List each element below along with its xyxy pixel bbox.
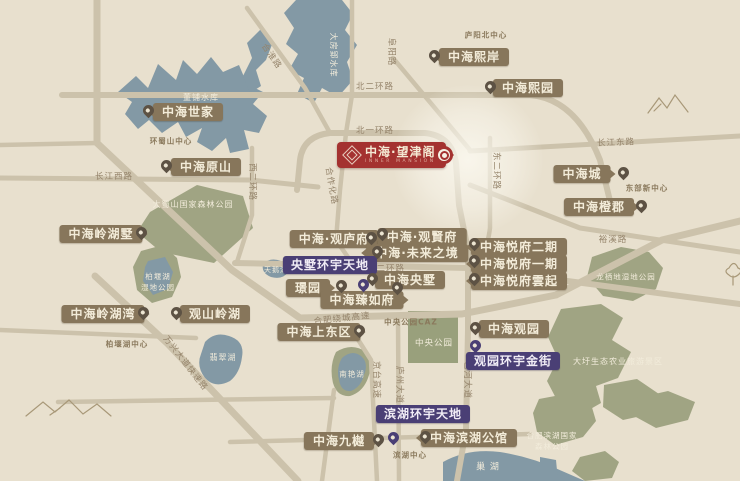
project-tag: 中海上东区 xyxy=(277,323,360,341)
nature-label: 翡翠湖 xyxy=(210,352,237,364)
road-label: 裕溪路 xyxy=(599,233,628,245)
location-map: 中海·望津阁 INNER MANSION 中海世家中海原山中海熙岸中海熙园中海岭… xyxy=(0,0,740,481)
project-tag: 中海熙岸 xyxy=(439,48,509,66)
project-badge: 中海·望津阁 INNER MANSION xyxy=(337,142,446,168)
nature-label: 龙栖地湿地公园 xyxy=(596,271,656,282)
district-label: 环蜀山中心 xyxy=(150,136,193,147)
road-label: 长江东路 xyxy=(597,135,635,148)
road-label: 北二环路 xyxy=(356,80,394,92)
zhonghai-logo-icon xyxy=(342,145,362,165)
badge-project-name: 中海·望津阁 xyxy=(365,146,436,158)
road-label: 阜阳路 xyxy=(386,38,398,67)
project-tag: 中海熙园 xyxy=(493,79,563,97)
nature-label: 南艳湖 xyxy=(339,368,365,379)
project-tag: 中海九樾 xyxy=(304,432,374,450)
project-tag: 中海悦府雲起 xyxy=(471,272,567,290)
district-label: 庐阳北中心 xyxy=(465,30,508,41)
road-label: 庐州大道 xyxy=(394,366,406,404)
district-label: 中央公园CAZ xyxy=(384,317,438,328)
road-label: 长江西路 xyxy=(95,170,133,182)
project-tag: 中海橙郡 xyxy=(564,198,634,216)
road-label: 东二环路 xyxy=(491,152,503,190)
nature-label: 大圩生态农业旅游景区 xyxy=(573,356,663,368)
road-label: 北一环路 xyxy=(356,124,394,136)
district-label: 东部新中心 xyxy=(626,183,669,194)
project-tag: 中海臻如府 xyxy=(320,291,403,309)
project-tag: 中海央墅 xyxy=(375,271,445,289)
hub-tag: 央墅环宇天地 xyxy=(283,256,377,274)
project-tag: 中海滨湖公馆 xyxy=(421,429,517,447)
badge-texts: 中海·望津阁 INNER MANSION xyxy=(365,146,436,165)
project-tag: 中海观园 xyxy=(479,320,549,338)
nature-label: 合肥滨湖国家 森林公园 xyxy=(527,430,578,453)
nature-label: 中央公园 xyxy=(415,338,453,351)
badge-target-marker-icon xyxy=(435,146,453,164)
hub-tag: 滨湖环宇天地 xyxy=(376,405,470,423)
nature-label: 大蜀山国家森林公园 xyxy=(153,199,234,211)
project-tag: 中海岭湖湾 xyxy=(61,305,144,323)
nature-label: 巢 湖 xyxy=(476,461,500,475)
project-tag: 中海世家 xyxy=(153,103,223,121)
badge-project-subtitle: INNER MANSION xyxy=(365,160,436,165)
nature-label: 柏堰湖 湿地公园 xyxy=(141,271,175,294)
project-tag: 中海悦府二期 xyxy=(471,238,567,256)
project-tag: 观山岭湖 xyxy=(180,305,250,323)
project-tag: 中海原山 xyxy=(171,158,241,176)
road-label: 西二环路 xyxy=(247,163,259,201)
project-tag: 中海城 xyxy=(553,165,610,183)
nature-label: 大房郢水库 xyxy=(327,33,339,78)
district-label: 滨湖中心 xyxy=(393,450,427,461)
road-label: 京台高速 xyxy=(371,361,383,399)
project-tag: 中海悦府一期 xyxy=(471,255,567,273)
district-label: 柏堰湖中心 xyxy=(106,339,149,350)
project-tag: 中海岭湖墅 xyxy=(59,225,142,243)
hub-tag: 观园环宇金街 xyxy=(466,352,560,370)
